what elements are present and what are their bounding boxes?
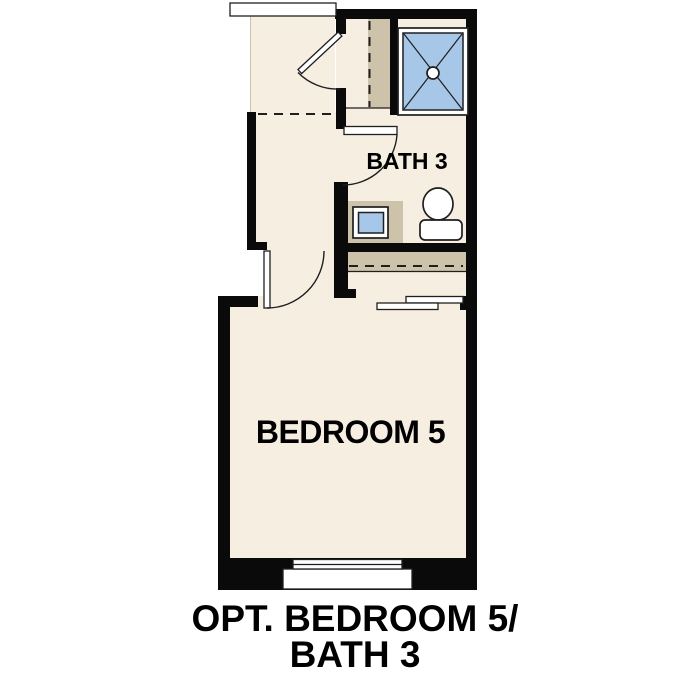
wall-segment-closet-divider (334, 182, 348, 298)
wall-segment-hall-door-bottom-jamb (336, 88, 346, 129)
window (283, 560, 412, 590)
bedroom-label: BEDROOM 5 (256, 414, 445, 450)
toilet-tank (420, 220, 462, 240)
shower-drain-icon (427, 67, 439, 79)
wall-segment-hall-door-top-jamb (336, 19, 346, 34)
wall-segment-bedroom-top-left (218, 296, 258, 307)
caption-line-2: BATH 3 (290, 634, 421, 675)
bath-door-leaf (344, 127, 397, 135)
closet-shelf (346, 252, 466, 271)
linen-closet-shelf (368, 19, 390, 108)
bath-door-threshold (336, 129, 346, 182)
vanity-sink (353, 207, 388, 238)
wall-segment-top (335, 9, 477, 19)
sliding-door-panel (377, 303, 438, 310)
bedroom-door-leaf (264, 251, 270, 308)
hallway-door-threshold (336, 34, 346, 88)
bath-label: BATH 3 (366, 148, 447, 174)
wall-break-symbol (230, 3, 336, 16)
hallway-floor (250, 16, 335, 115)
sink-bowl (359, 213, 384, 234)
caption: OPT. BEDROOM 5/ BATH 3 (192, 598, 519, 675)
wall-segment-bedroom-left (218, 296, 230, 590)
toilet-bowl (423, 188, 453, 220)
wall-segment-linen-shower-divider (390, 17, 398, 115)
sliding-door-panel (406, 297, 463, 304)
floor-plan: BATH 3 BEDROOM 5 OPT. BEDROOM 5/ BATH 3 (0, 0, 687, 687)
caption-line-1: OPT. BEDROOM 5/ (192, 598, 519, 639)
shower (398, 28, 468, 115)
wall-segment-bath-left-foot (247, 242, 267, 250)
wall-segment-closet-divider-foot (348, 289, 356, 298)
wall-segment-bath-left (247, 112, 256, 250)
window-sill (283, 569, 412, 589)
wall-segment-bath-bedroom-divider (334, 243, 466, 252)
